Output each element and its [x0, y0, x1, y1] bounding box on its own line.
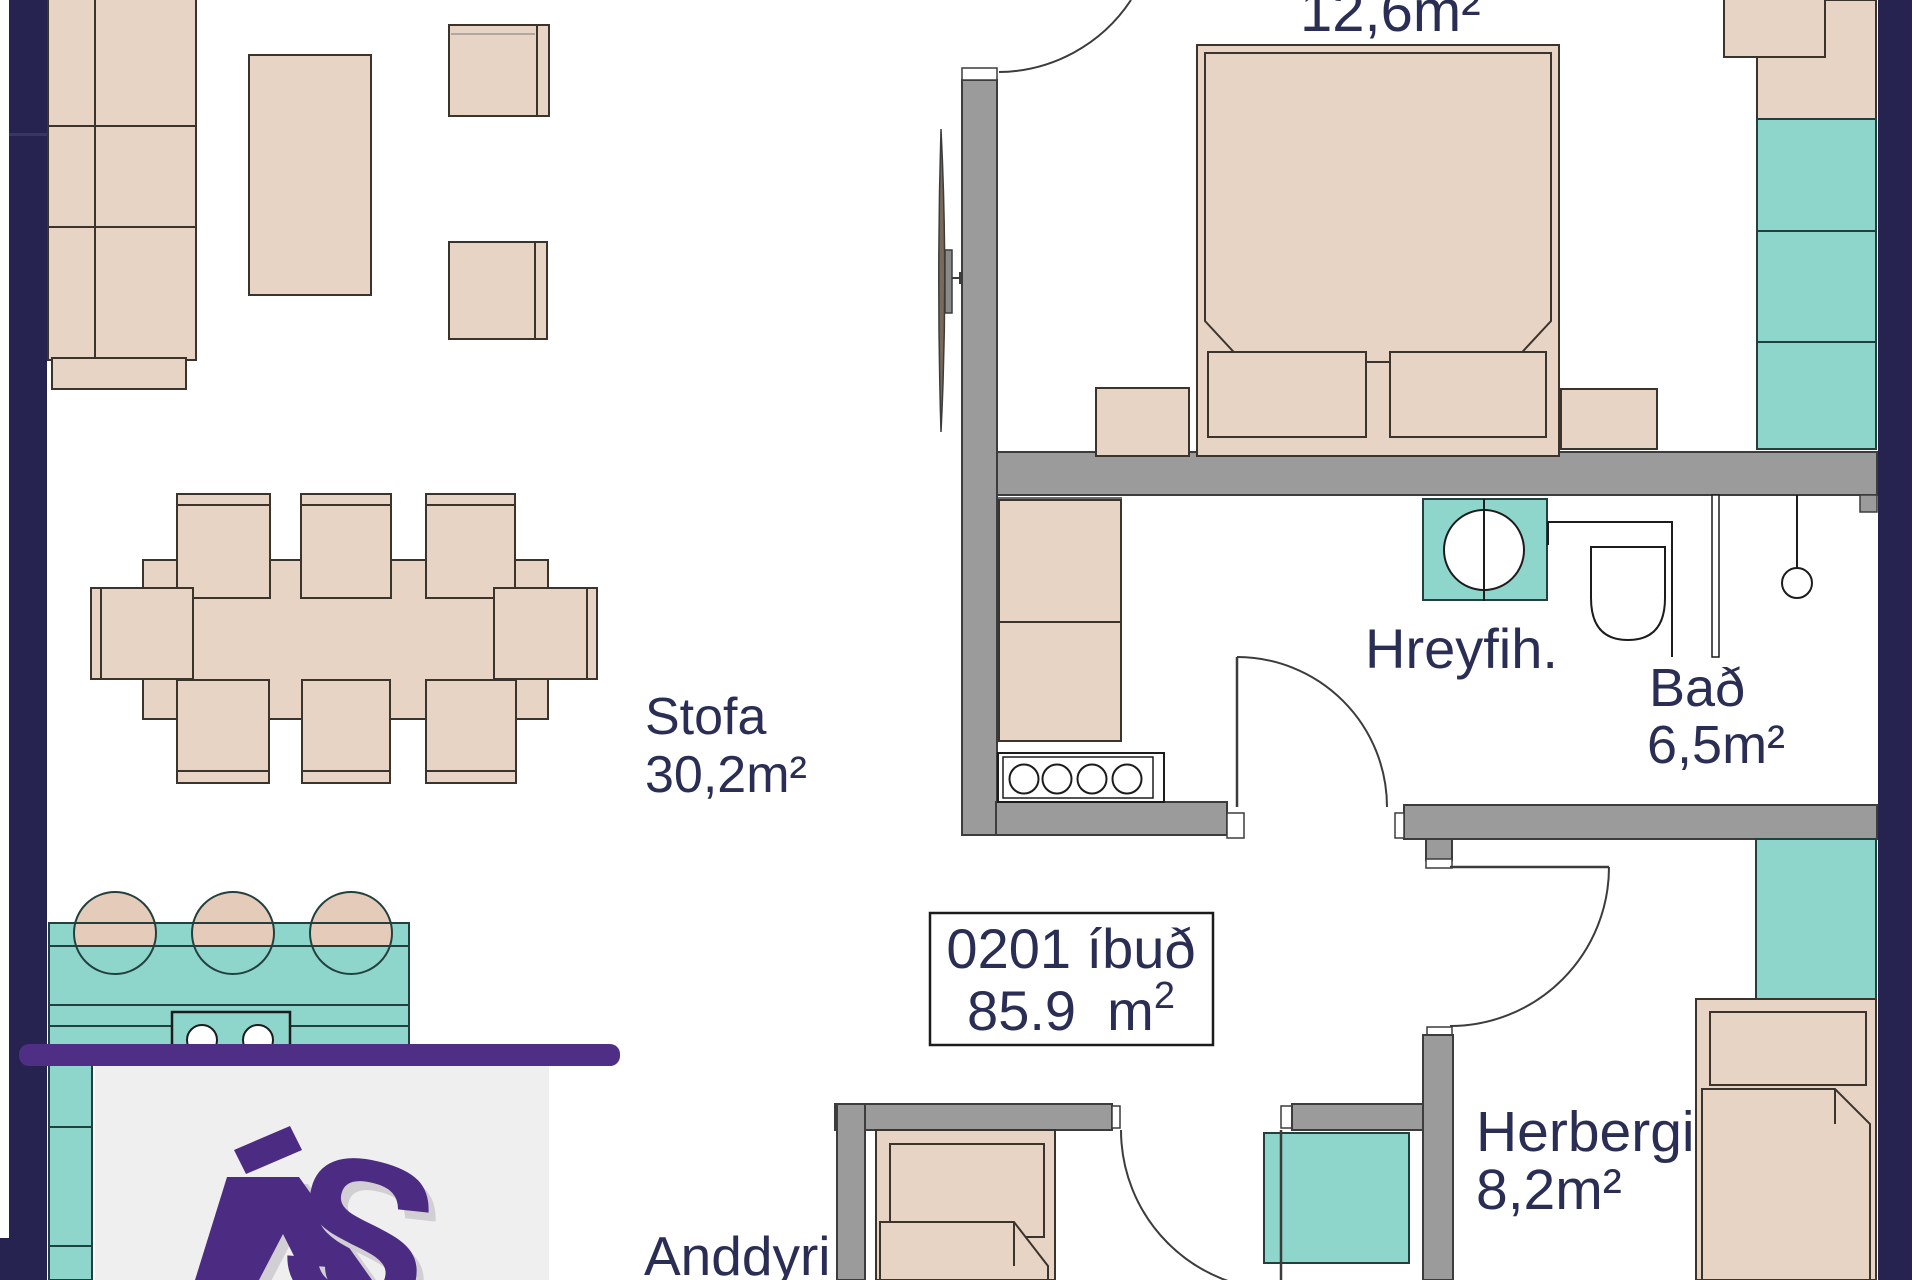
svg-text:6,5m²: 6,5m²	[1647, 715, 1785, 775]
svg-text:12,6m²: 12,6m²	[1300, 0, 1481, 44]
svg-text:8,2m²: 8,2m²	[1476, 1158, 1622, 1222]
svg-text:Stofa: Stofa	[645, 688, 766, 746]
svg-text:Hreyfih.: Hreyfih.	[1365, 617, 1558, 680]
svg-text:30,2m²: 30,2m²	[645, 746, 807, 804]
svg-text:0201 íbuð: 0201 íbuð	[946, 917, 1195, 980]
svg-text:Bað: Bað	[1649, 658, 1745, 718]
svg-text:Anddyri: Anddyri	[644, 1225, 830, 1280]
svg-text:Herbergi: Herbergi	[1476, 1100, 1695, 1164]
svg-text:85.9 m2: 85.9 m2	[967, 975, 1175, 1042]
